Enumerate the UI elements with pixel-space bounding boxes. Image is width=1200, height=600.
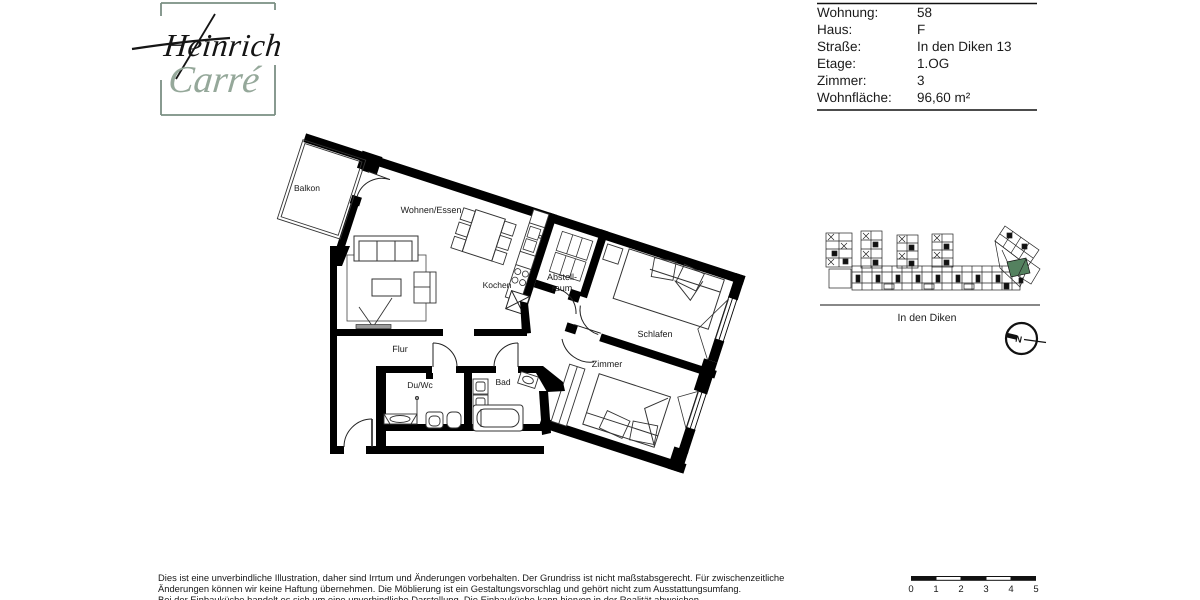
svg-text:Zimmer: Zimmer (592, 359, 623, 369)
svg-text:raum: raum (552, 283, 573, 293)
svg-text:5: 5 (1033, 584, 1038, 595)
svg-text:3: 3 (917, 73, 925, 88)
svg-text:Heinrich: Heinrich (161, 27, 284, 63)
svg-text:Carré: Carré (166, 59, 263, 101)
svg-text:Du/Wc: Du/Wc (407, 380, 433, 390)
svg-text:96,60 m²: 96,60 m² (917, 90, 971, 105)
svg-text:Wohnen/Essen: Wohnen/Essen (401, 205, 462, 215)
svg-text:4: 4 (1008, 584, 1013, 595)
svg-text:In den Diken: In den Diken (898, 312, 957, 324)
svg-text:58: 58 (917, 5, 932, 20)
svg-text:Abstell-: Abstell- (547, 272, 577, 282)
svg-text:3: 3 (983, 584, 988, 595)
svg-text:Etage:: Etage: (817, 56, 856, 71)
svg-text:1: 1 (933, 584, 938, 595)
svg-text:Kochen: Kochen (483, 280, 512, 290)
svg-text:Schlafen: Schlafen (637, 329, 672, 339)
svg-text:Bei der Einbauküche handelt es: Bei der Einbauküche handelt es sich um e… (158, 594, 702, 600)
svg-text:Dies ist eine unverbindliche I: Dies ist eine unverbindliche Illustratio… (158, 572, 784, 583)
svg-text:Bad: Bad (495, 377, 510, 387)
svg-text:Zimmer:: Zimmer: (817, 73, 867, 88)
svg-text:Änderungen können wir keine Ha: Änderungen können wir keine Haftung über… (158, 583, 741, 594)
svg-text:Balkon: Balkon (294, 183, 320, 193)
svg-text:F: F (917, 22, 925, 37)
svg-text:0: 0 (908, 584, 913, 595)
svg-text:2: 2 (958, 584, 963, 595)
svg-text:Flur: Flur (392, 344, 408, 354)
svg-text:In den Diken 13: In den Diken 13 (917, 39, 1012, 54)
svg-text:Wohnung:: Wohnung: (817, 5, 878, 20)
svg-text:1.OG: 1.OG (917, 56, 949, 71)
svg-text:Wohnfläche:: Wohnfläche: (817, 90, 892, 105)
svg-text:Straße:: Straße: (817, 39, 861, 54)
svg-text:Haus:: Haus: (817, 22, 852, 37)
